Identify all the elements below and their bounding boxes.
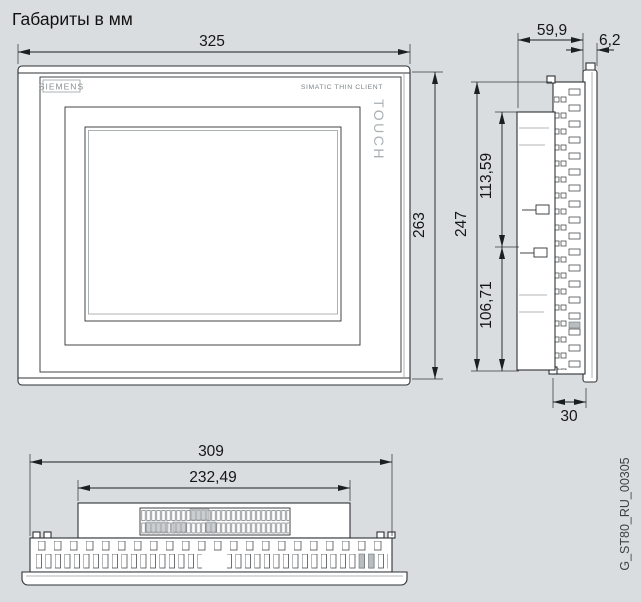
front-view: SIEMENS SIMATIC THIN CLIENT TOUCH <box>18 66 410 385</box>
dim-side-depth-value: 59,9 <box>537 22 567 39</box>
dim-bezel-thickness-value: 6,2 <box>599 32 621 49</box>
bottom-view <box>22 503 407 585</box>
product-label: SIMATIC THIN CLIENT <box>301 84 383 91</box>
dim-front-height-value: 263 <box>411 212 428 238</box>
dimension-drawing-page: Габариты в мм SIEMENS SIMATIC THIN CLIEN… <box>0 0 641 602</box>
dimension-drawing: Габариты в мм SIEMENS SIMATIC THIN CLIEN… <box>0 0 641 602</box>
dim-side-total-height-value: 247 <box>453 211 470 237</box>
siemens-logo: SIEMENS <box>39 82 84 92</box>
dim-side-lower-value: 106,71 <box>478 281 495 328</box>
dim-bottom-outer-width-value: 309 <box>198 443 224 460</box>
dim-rear-depth-value: 30 <box>560 408 578 425</box>
drawing-code: G_ST80_RU_00305 <box>618 457 632 570</box>
page-title: Габариты в мм <box>12 9 133 29</box>
dim-rear-housing-width-value: 232,49 <box>189 469 236 486</box>
dim-side-upper-value: 113,59 <box>478 153 495 199</box>
dim-front-width-value: 325 <box>199 33 225 50</box>
vent-row-small <box>38 541 388 551</box>
touch-label: TOUCH <box>371 99 387 161</box>
